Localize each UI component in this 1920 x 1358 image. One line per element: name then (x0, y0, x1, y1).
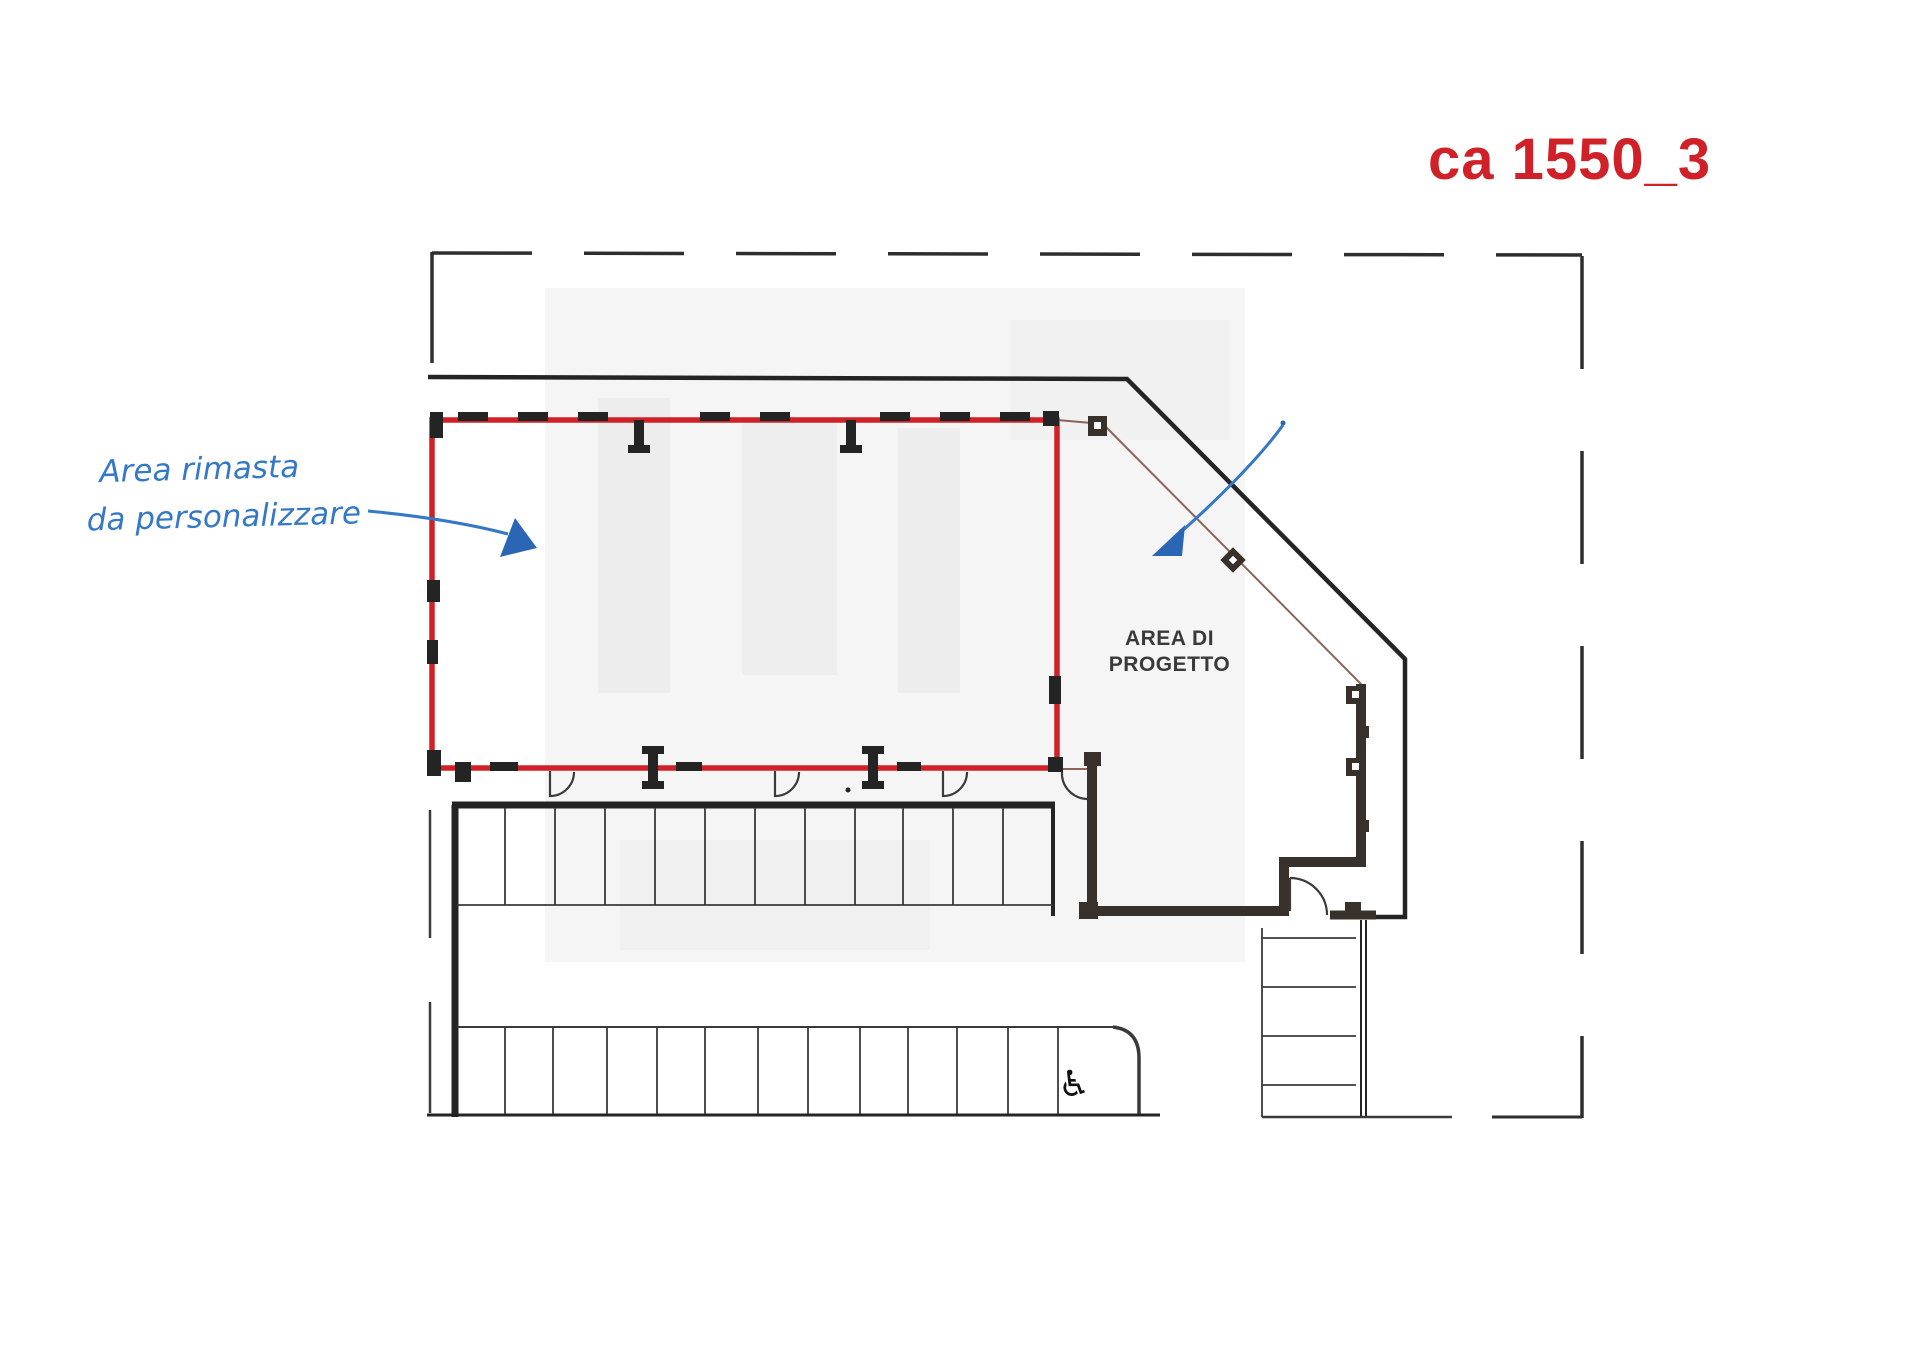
parking-strip-east (1262, 920, 1452, 1117)
drawing-code: ca 1550_3 (1428, 126, 1748, 193)
accessible-parking-icon: ♿ (1058, 1064, 1090, 1105)
site-plan-scan: ♿ ca 1550_3 Area rimasta da personalizza… (0, 0, 1920, 1358)
project-area-label-line1: AREA DI (1082, 626, 1257, 652)
project-area-label: AREA DI PROGETTO (1082, 626, 1257, 679)
site-plan-drawing: ♿ (0, 0, 1920, 1358)
project-area-label-line2: PROGETTO (1082, 652, 1257, 678)
handwritten-note-line2: da personalizzare (86, 488, 427, 545)
handwritten-note: Area rimasta da personalizzare (85, 440, 427, 545)
parking-row-2 (427, 1027, 1160, 1115)
